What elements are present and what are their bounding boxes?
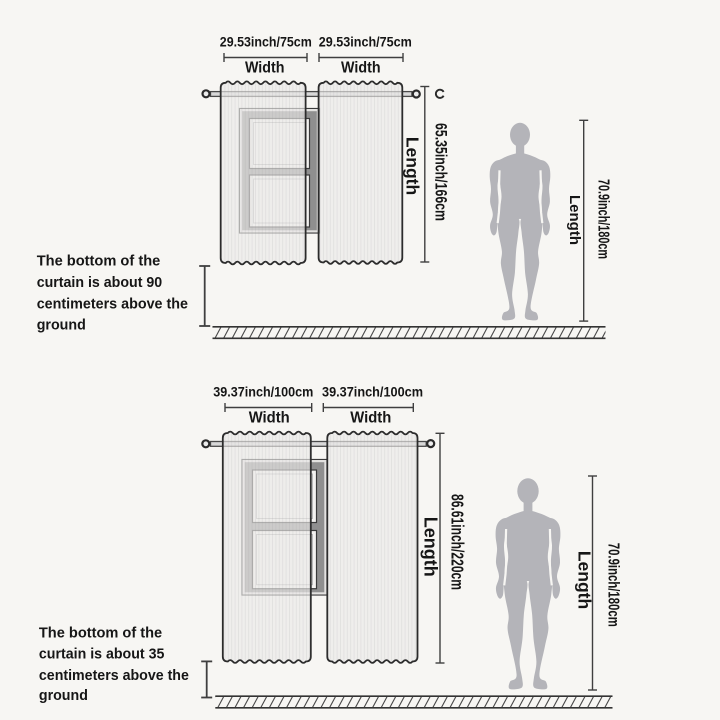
svg-text:The bottom of the: The bottom of the bbox=[39, 625, 162, 642]
svg-text:Length: Length bbox=[575, 551, 595, 609]
svg-text:Length: Length bbox=[403, 137, 423, 195]
svg-text:The bottom of the: The bottom of the bbox=[37, 252, 161, 269]
svg-text:65.35inch/166cm: 65.35inch/166cm bbox=[431, 123, 450, 221]
svg-text:Width: Width bbox=[245, 60, 285, 77]
svg-text:centimeters above the: centimeters above the bbox=[39, 667, 189, 684]
svg-text:Length: Length bbox=[566, 195, 583, 245]
svg-text:Width: Width bbox=[350, 410, 391, 427]
svg-text:86.61inch/220cm: 86.61inch/220cm bbox=[448, 494, 468, 590]
svg-text:29.53inch/75cm: 29.53inch/75cm bbox=[220, 34, 312, 50]
svg-text:39.37inch/100cm: 39.37inch/100cm bbox=[213, 384, 313, 400]
svg-text:Length: Length bbox=[421, 517, 441, 577]
svg-text:ground: ground bbox=[37, 316, 86, 333]
svg-text:centimeters above the: centimeters above the bbox=[37, 296, 188, 313]
svg-text:70.9inch/180cm: 70.9inch/180cm bbox=[594, 179, 611, 259]
svg-text:curtain is about 35: curtain is about 35 bbox=[39, 646, 164, 663]
svg-text:curtain is about 90: curtain is about 90 bbox=[37, 274, 163, 291]
svg-text:ground: ground bbox=[39, 687, 88, 704]
svg-text:Width: Width bbox=[249, 410, 290, 427]
svg-text:Width: Width bbox=[341, 60, 381, 77]
svg-text:29.53inch/75cm: 29.53inch/75cm bbox=[319, 34, 412, 50]
svg-text:39.37inch/100cm: 39.37inch/100cm bbox=[322, 384, 423, 400]
svg-text:70.9inch/180cm: 70.9inch/180cm bbox=[605, 543, 622, 627]
